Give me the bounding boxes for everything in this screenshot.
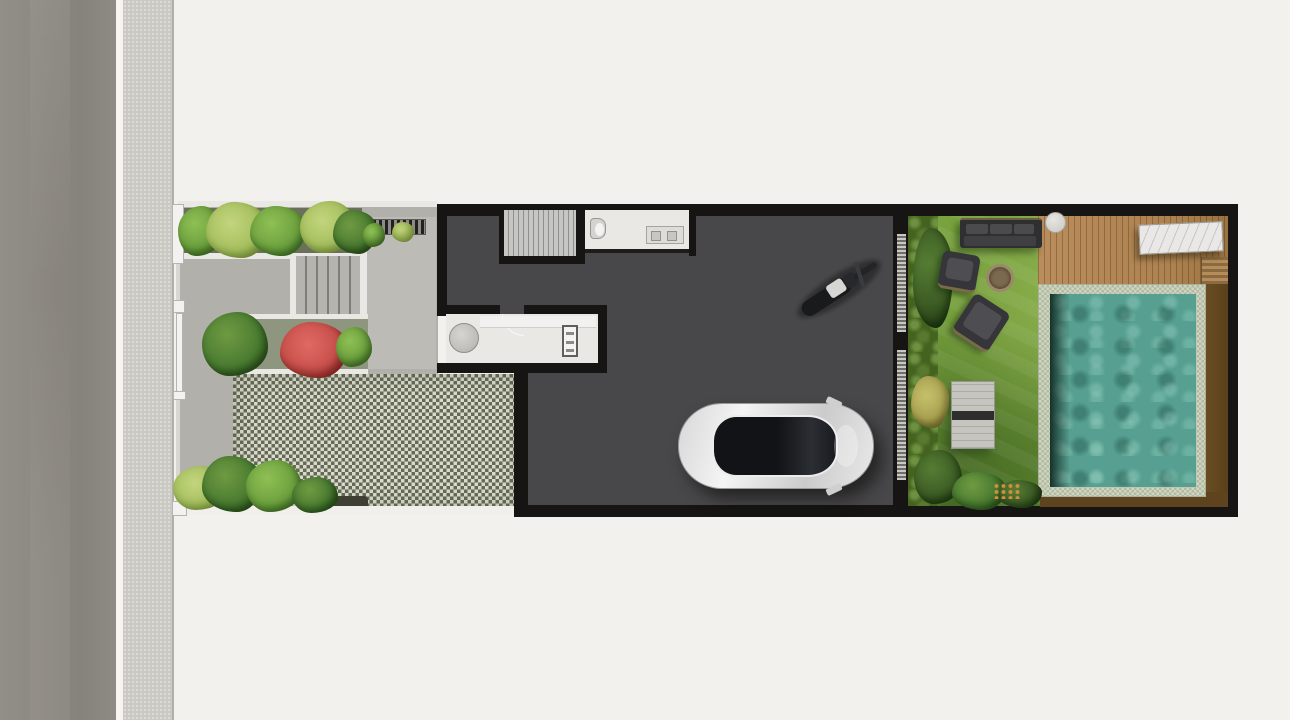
kitchen-wall — [598, 305, 607, 373]
shrub — [392, 222, 414, 242]
outdoor-sofa — [960, 218, 1042, 248]
stair-wall — [499, 256, 585, 264]
sink-vanity — [646, 226, 684, 244]
toilet — [590, 218, 606, 239]
wood-trim-right — [1204, 284, 1230, 506]
gate-post — [173, 391, 186, 400]
slatted-gate — [897, 234, 906, 332]
kitchen-door-opening — [500, 305, 524, 314]
entry-steps — [296, 256, 360, 316]
car-roof-glass — [712, 415, 838, 477]
palm-plant — [202, 312, 268, 376]
side-table — [1045, 212, 1066, 233]
outdoor-dining-table — [1138, 221, 1223, 255]
sidewalk — [123, 0, 174, 720]
bathroom-wall — [689, 210, 696, 256]
round-table — [449, 323, 479, 353]
stair-wall — [576, 210, 585, 258]
shrub — [336, 327, 372, 367]
car-hood-highlight — [834, 425, 858, 467]
shrub — [250, 206, 306, 256]
building-wall-right — [1228, 204, 1238, 517]
floor-plan-render — [0, 0, 1290, 720]
road-curb-line — [116, 0, 123, 720]
street-road — [0, 0, 116, 720]
shrub — [363, 223, 385, 247]
yellow-shrub — [911, 376, 949, 428]
pool-water — [1050, 294, 1196, 487]
slatted-gate — [897, 350, 906, 480]
shrub — [292, 477, 338, 513]
kitchen-counter — [480, 316, 596, 328]
car — [678, 403, 874, 489]
lounge-chair — [937, 250, 981, 294]
front-boundary-wall — [178, 201, 438, 207]
flower-patch-orange — [993, 483, 1021, 499]
fire-pit — [986, 264, 1014, 292]
sun-lounger — [951, 381, 995, 449]
building-wall-left — [437, 204, 447, 316]
deck-steps — [1201, 257, 1228, 284]
side-wall — [514, 367, 528, 507]
front-gate — [176, 313, 183, 393]
staircase — [504, 210, 578, 257]
gate-post — [173, 300, 185, 313]
road-texture — [30, 0, 70, 720]
kitchen-appliance — [562, 325, 578, 357]
pool-shadow-edge — [1050, 294, 1070, 487]
